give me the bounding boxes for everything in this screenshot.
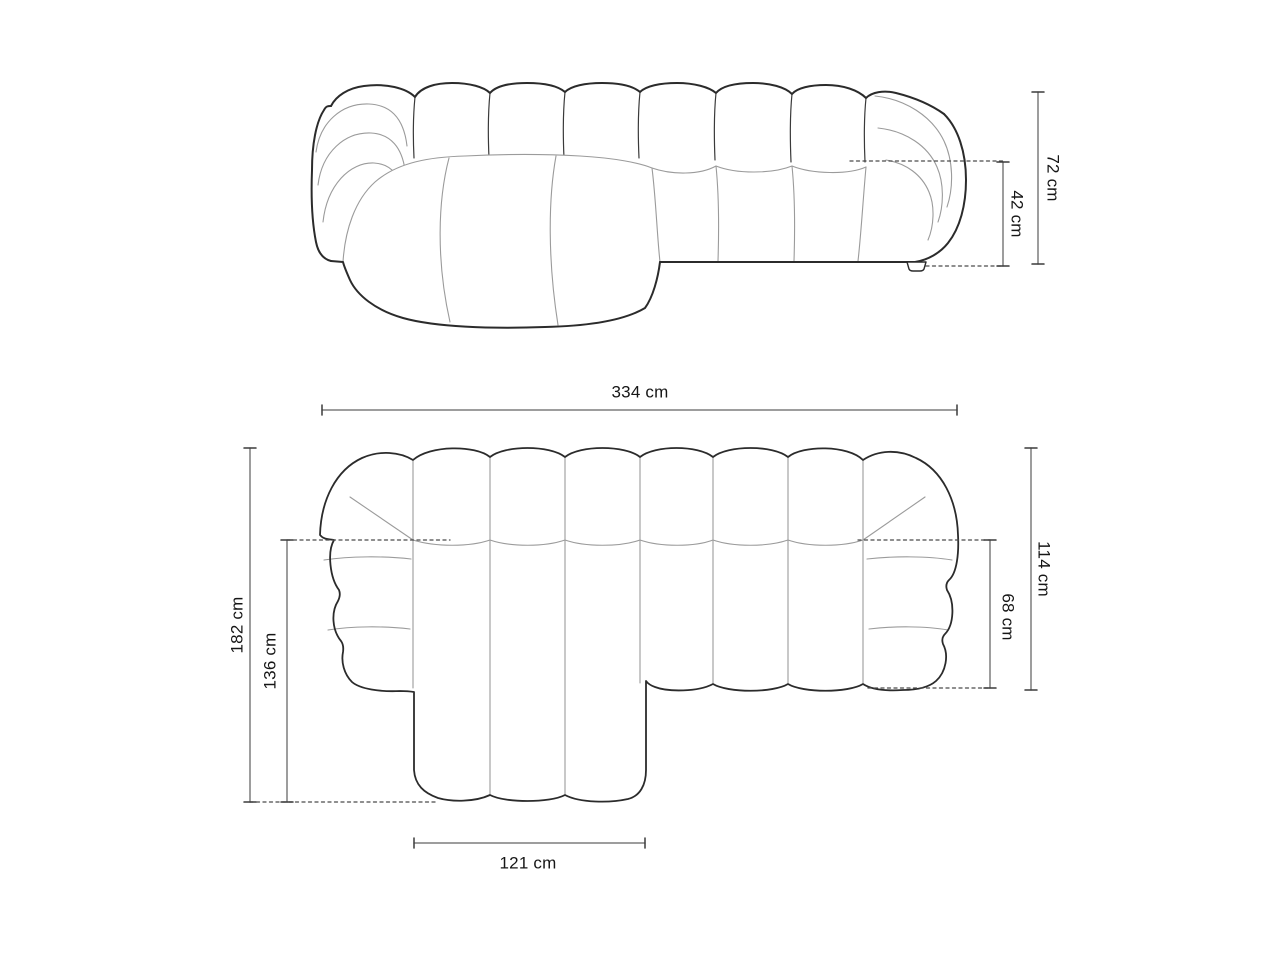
plan-seat-depth-label: 68 cm <box>1000 593 1017 640</box>
front-height-label: 72 cm <box>1045 154 1062 201</box>
plan-width-dimension-line <box>322 405 957 415</box>
plan-corner-seams <box>350 497 925 540</box>
plan-body-depth-label: 114 cm <box>1036 541 1053 597</box>
plan-channel-seams <box>413 457 863 795</box>
plan-chaise-width-label: 121 cm <box>500 855 557 872</box>
dimension-diagram-drawing <box>0 0 1280 960</box>
plan-chaise-width-dimension-line <box>414 838 645 848</box>
plan-seat-depth-dimension-line <box>984 540 996 688</box>
front-chaise-blob <box>343 155 660 328</box>
front-chaise-cushions <box>343 155 660 328</box>
front-seat-seams <box>652 166 866 261</box>
front-view-drawing <box>312 83 1044 328</box>
front-seat-height-label: 42 cm <box>1009 190 1026 237</box>
plan-chaise-depth-dimension-line <box>281 540 293 802</box>
front-height-dimension-line <box>1032 92 1044 264</box>
plan-projection-dashes <box>250 540 990 802</box>
front-backrest-channel-seams <box>413 92 866 162</box>
front-right-arm-seams <box>875 96 952 240</box>
plan-depth-label: 182 cm <box>229 597 246 654</box>
plan-seat-front-scallop <box>413 540 863 545</box>
plan-chaise-depth-label: 136 cm <box>262 633 279 690</box>
plan-view-drawing <box>244 405 1037 848</box>
plan-arm-lobe-seams <box>324 557 952 630</box>
sofa-dimension-diagram: 72 cm 42 cm 334 cm 182 cm 136 cm 114 cm … <box>0 0 1280 960</box>
plan-width-label: 334 cm <box>612 384 669 401</box>
front-foot <box>907 262 926 271</box>
front-projection-dashes <box>850 161 1003 266</box>
